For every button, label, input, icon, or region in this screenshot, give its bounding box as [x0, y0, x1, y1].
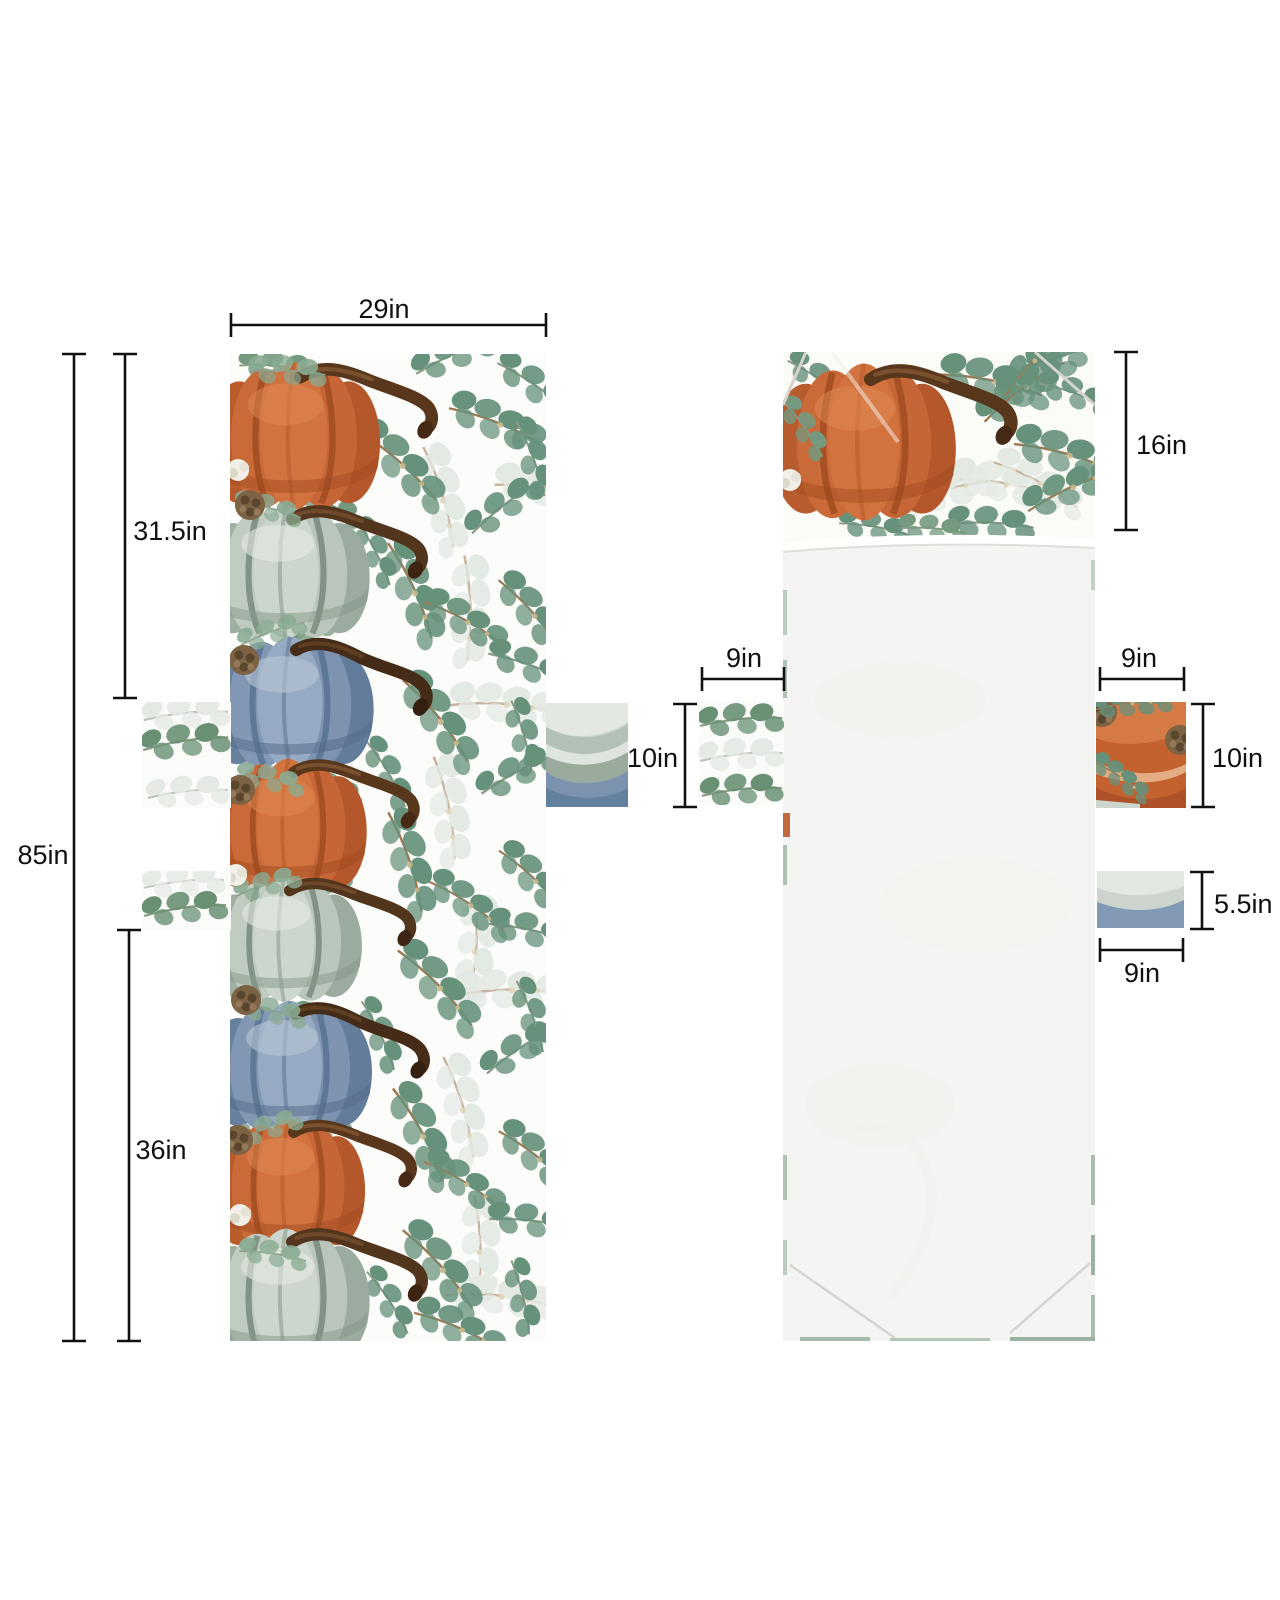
svg-text:31.5in: 31.5in — [133, 516, 207, 546]
svg-text:16in: 16in — [1136, 430, 1187, 460]
svg-text:36in: 36in — [135, 1135, 186, 1165]
svg-text:10in: 10in — [627, 743, 678, 773]
svg-text:29in: 29in — [358, 294, 409, 324]
svg-text:9in: 9in — [1121, 643, 1157, 673]
svg-text:9in: 9in — [1124, 958, 1160, 988]
svg-text:5.5in: 5.5in — [1214, 889, 1273, 919]
svg-text:9in: 9in — [726, 643, 762, 673]
svg-text:10in: 10in — [1212, 743, 1263, 773]
svg-text:85in: 85in — [17, 840, 68, 870]
